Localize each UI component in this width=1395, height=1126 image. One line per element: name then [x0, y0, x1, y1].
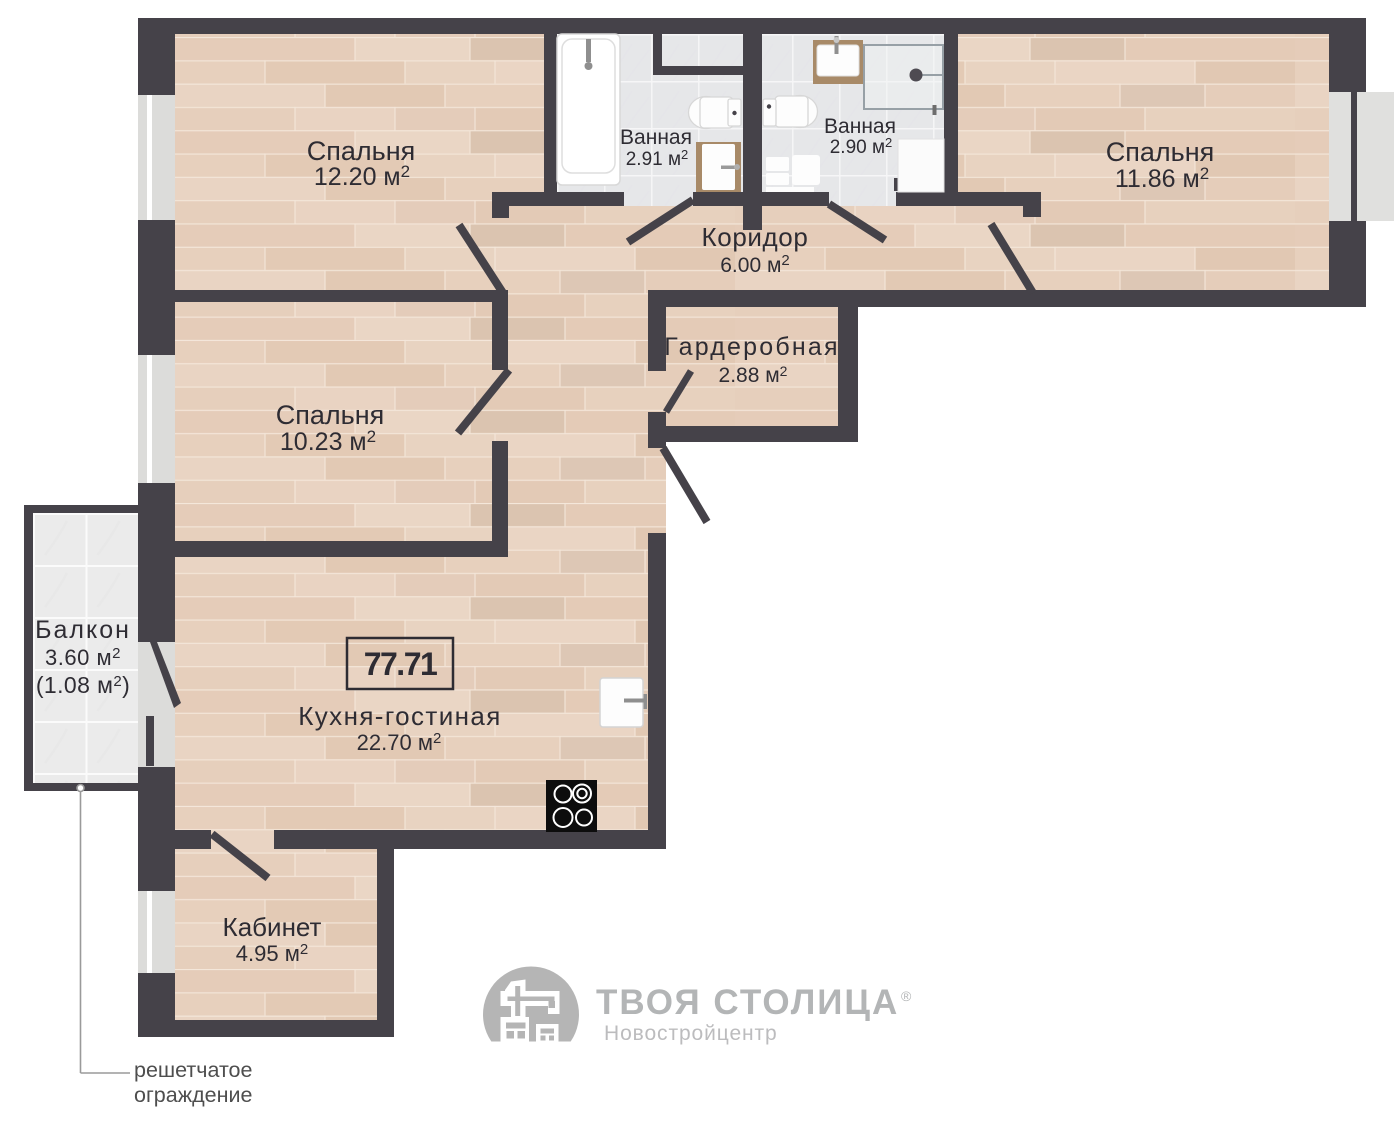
svg-text:Кухня-гостиная: Кухня-гостиная: [298, 701, 502, 731]
svg-text:3.60 м2: 3.60 м2: [45, 645, 121, 670]
svg-text:6.00 м2: 6.00 м2: [720, 252, 790, 277]
svg-text:2.91 м2: 2.91 м2: [626, 147, 689, 170]
svg-text:®: ®: [901, 988, 912, 1004]
svg-text:Спальня: Спальня: [1106, 137, 1215, 167]
svg-text:Новостройцентр: Новостройцентр: [604, 1022, 778, 1045]
svg-text:10.23 м2: 10.23 м2: [280, 427, 376, 456]
svg-text:Спальня: Спальня: [276, 400, 385, 430]
svg-text:ТВОЯ СТОЛИЦА: ТВОЯ СТОЛИЦА: [596, 983, 899, 1022]
svg-text:Коридор: Коридор: [702, 222, 809, 252]
svg-text:4.95 м2: 4.95 м2: [236, 941, 308, 966]
svg-text:11.86 м2: 11.86 м2: [1115, 164, 1209, 193]
svg-text:77.71: 77.71: [364, 646, 437, 682]
svg-text:Кабинет: Кабинет: [223, 912, 322, 942]
svg-text:Балкон: Балкон: [35, 616, 131, 644]
svg-text:2.90 м2: 2.90 м2: [830, 135, 893, 158]
svg-text:Спальня: Спальня: [307, 136, 416, 166]
svg-text:Гардеробная: Гардеробная: [664, 333, 839, 361]
svg-text:решетчатое: решетчатое: [134, 1058, 252, 1082]
svg-text:22.70 м2: 22.70 м2: [357, 730, 442, 755]
svg-text:ограждение: ограждение: [134, 1083, 252, 1107]
svg-text:2.88 м2: 2.88 м2: [719, 363, 788, 387]
svg-text:Ванная: Ванная: [620, 126, 692, 149]
svg-text:12.20 м2: 12.20 м2: [314, 162, 410, 191]
